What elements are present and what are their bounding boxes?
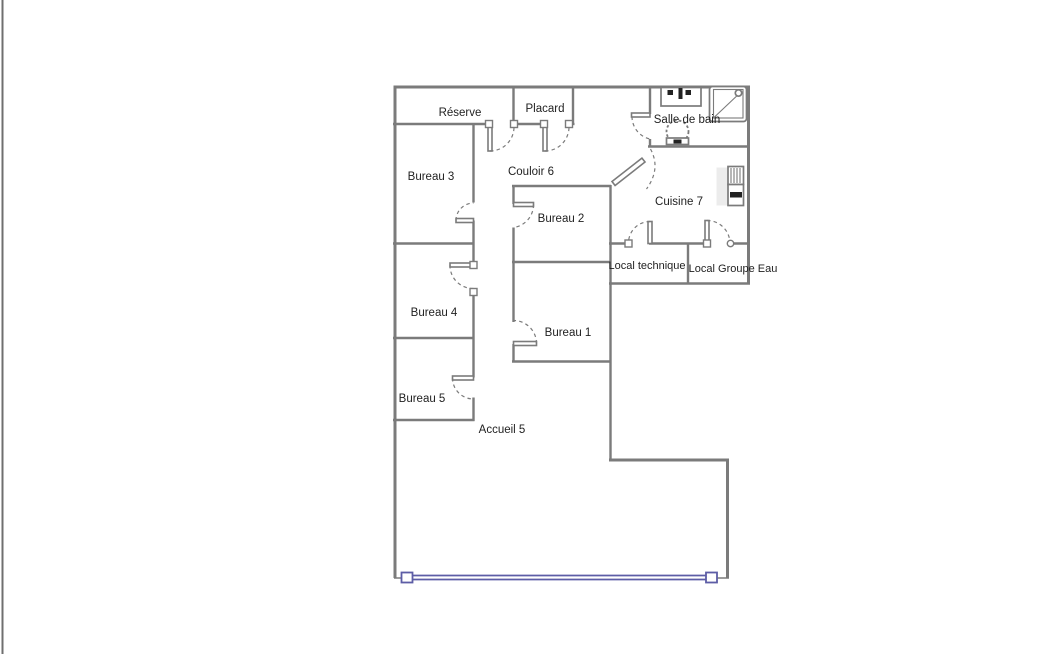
door-local-groupe-eau [704,221,734,248]
room-label-bureau-3: Bureau 3 [408,171,455,183]
interior-walls [393,86,749,421]
floor-plan-canvas: Réserve Placard Salle de bain Couloir 6 … [0,0,1051,654]
door-bureau-3 [456,203,474,223]
door-reserve [488,127,514,151]
door-placard [543,127,569,151]
room-label-local-technique: Local technique [608,260,685,272]
door-salle-de-bain [632,113,651,139]
room-label-cuisine-7: Cuisine 7 [655,196,703,208]
room-label-bureau-1: Bureau 1 [545,327,592,339]
sink-icon [661,88,701,107]
door-bureau-1 [514,321,537,346]
door-bureau-5 [453,376,474,399]
door-cuisine [612,149,655,189]
room-label-bureau-4: Bureau 4 [411,307,458,319]
room-label-salle-de-bain: Salle de bain [654,114,721,126]
door-local-technique [625,221,652,247]
room-label-local-groupe-eau: Local Groupe Eau [689,263,778,275]
room-label-accueil-5: Accueil 5 [479,424,526,436]
room-labels: Réserve Placard Salle de bain Couloir 6 … [399,103,778,436]
room-label-couloir-6: Couloir 6 [508,166,554,178]
room-label-bureau-5: Bureau 5 [399,393,446,405]
room-label-placard: Placard [526,103,565,115]
window-wall [402,573,718,583]
door-bureau-2 [514,203,534,228]
water-heater-icon [717,167,744,206]
room-label-reserve: Réserve [439,107,482,119]
door-bureau-4 [450,262,477,296]
room-label-bureau-2: Bureau 2 [538,213,585,225]
floor-plan-drawing: Réserve Placard Salle de bain Couloir 6 … [0,0,1051,654]
